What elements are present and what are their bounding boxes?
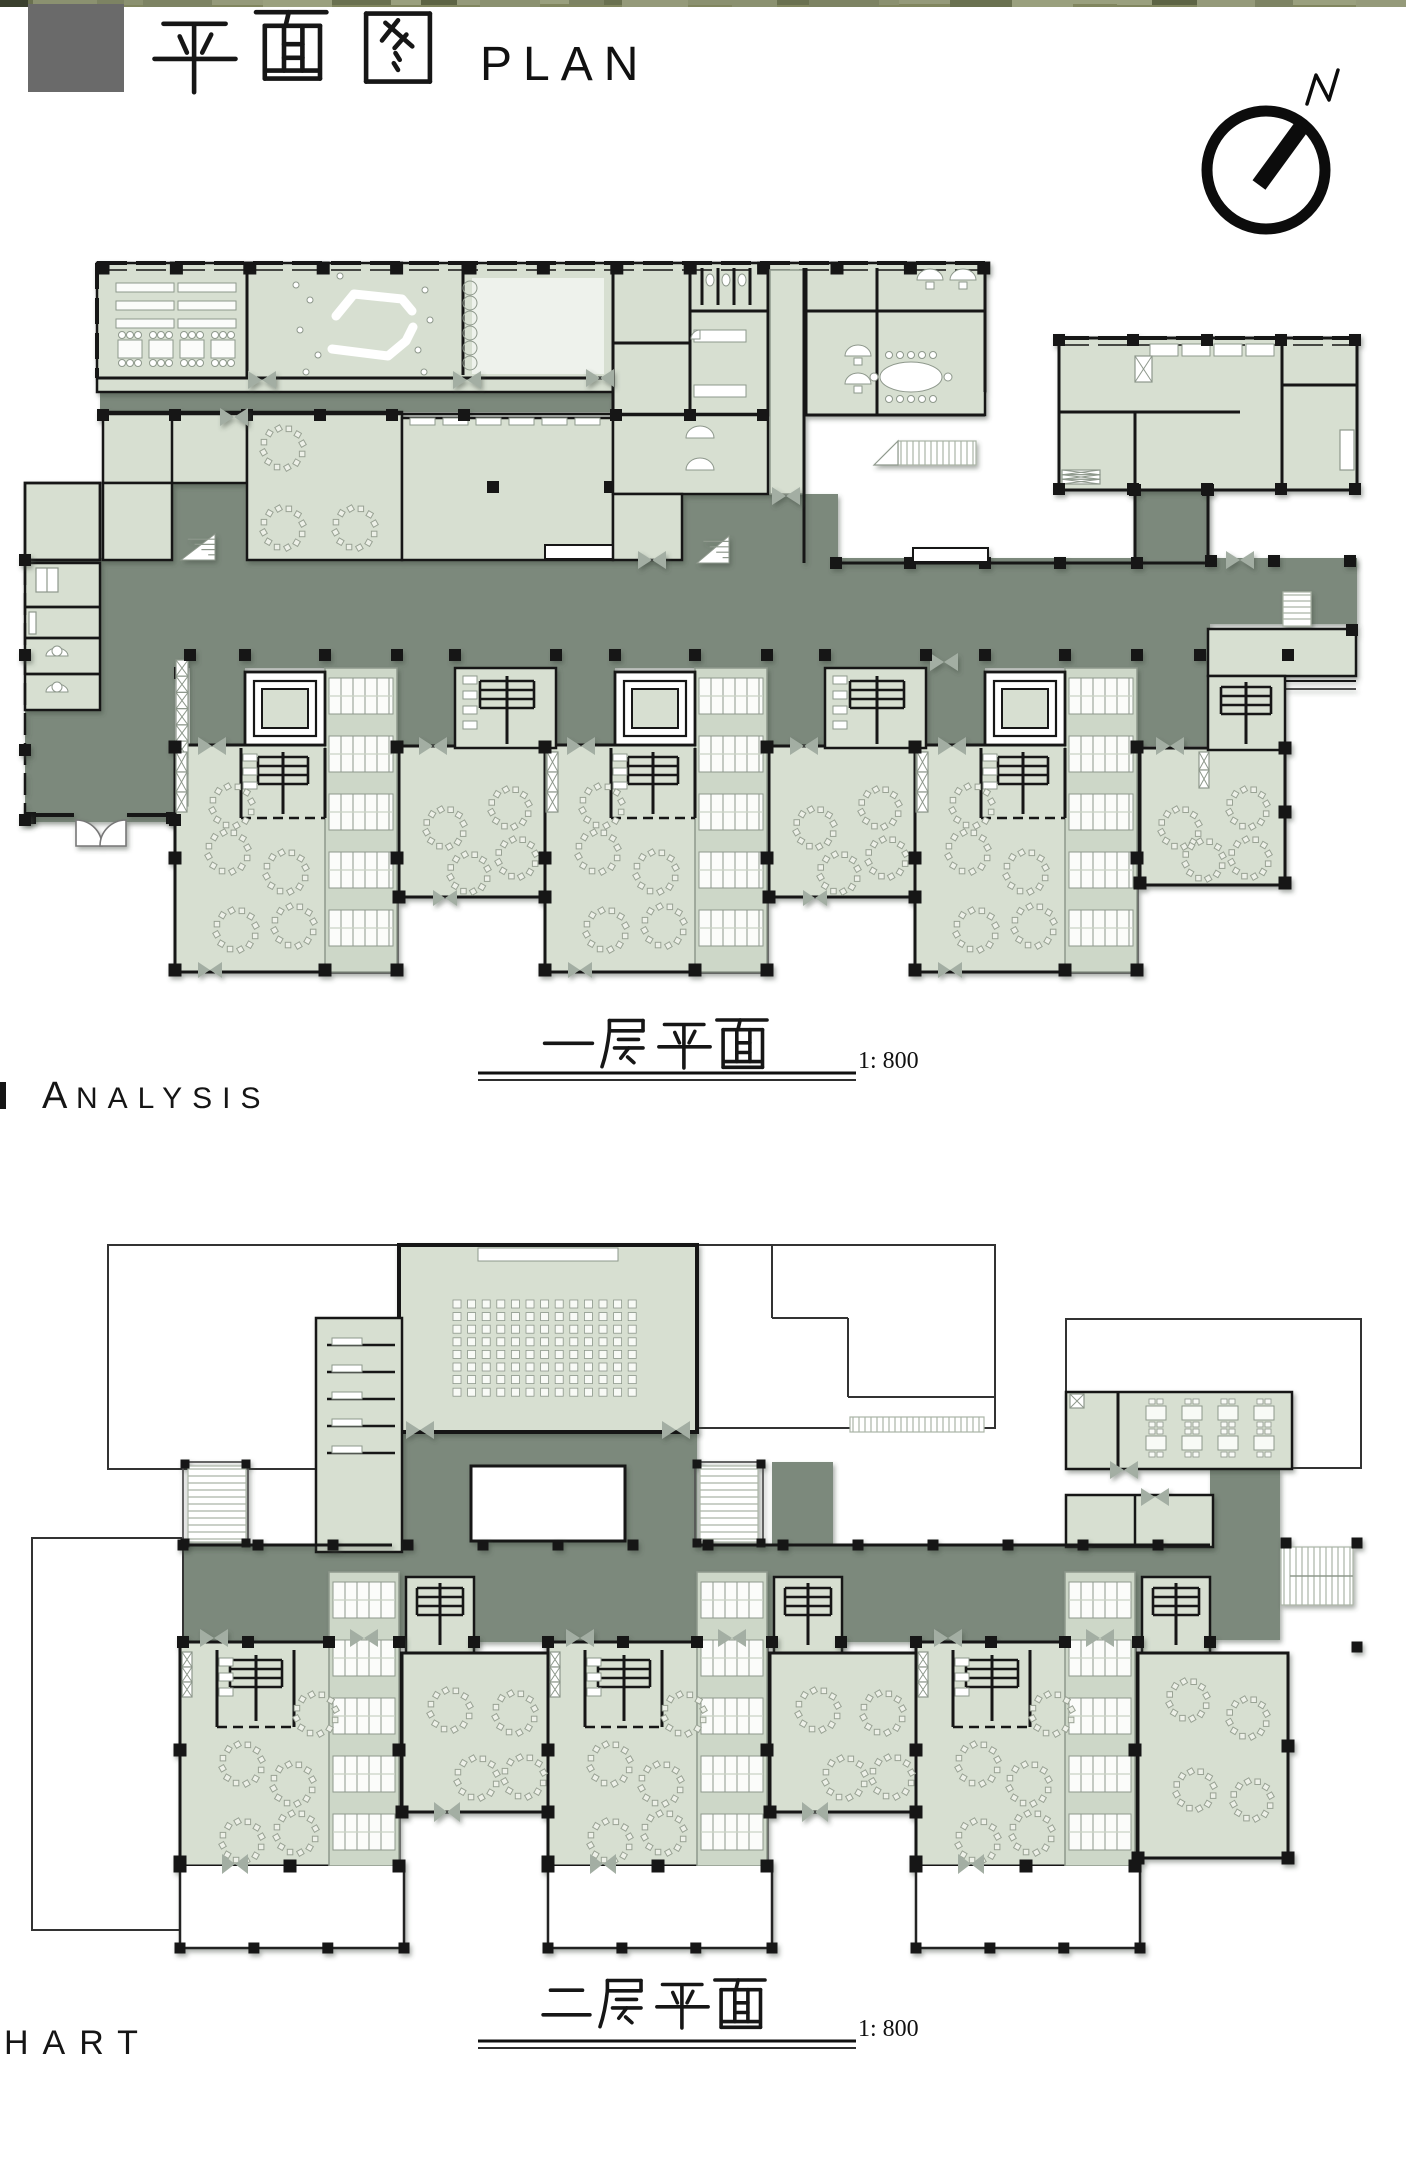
svg-text:1: 800: 1: 800 xyxy=(858,1048,919,1074)
svg-text:NALYSIS: NALYSIS xyxy=(76,1082,271,1115)
svg-text:1: 800: 1: 800 xyxy=(858,2016,919,2042)
svg-text:HART: HART xyxy=(4,2024,152,2062)
svg-text:PLAN: PLAN xyxy=(480,38,649,91)
svg-text:A: A xyxy=(42,1075,68,1117)
